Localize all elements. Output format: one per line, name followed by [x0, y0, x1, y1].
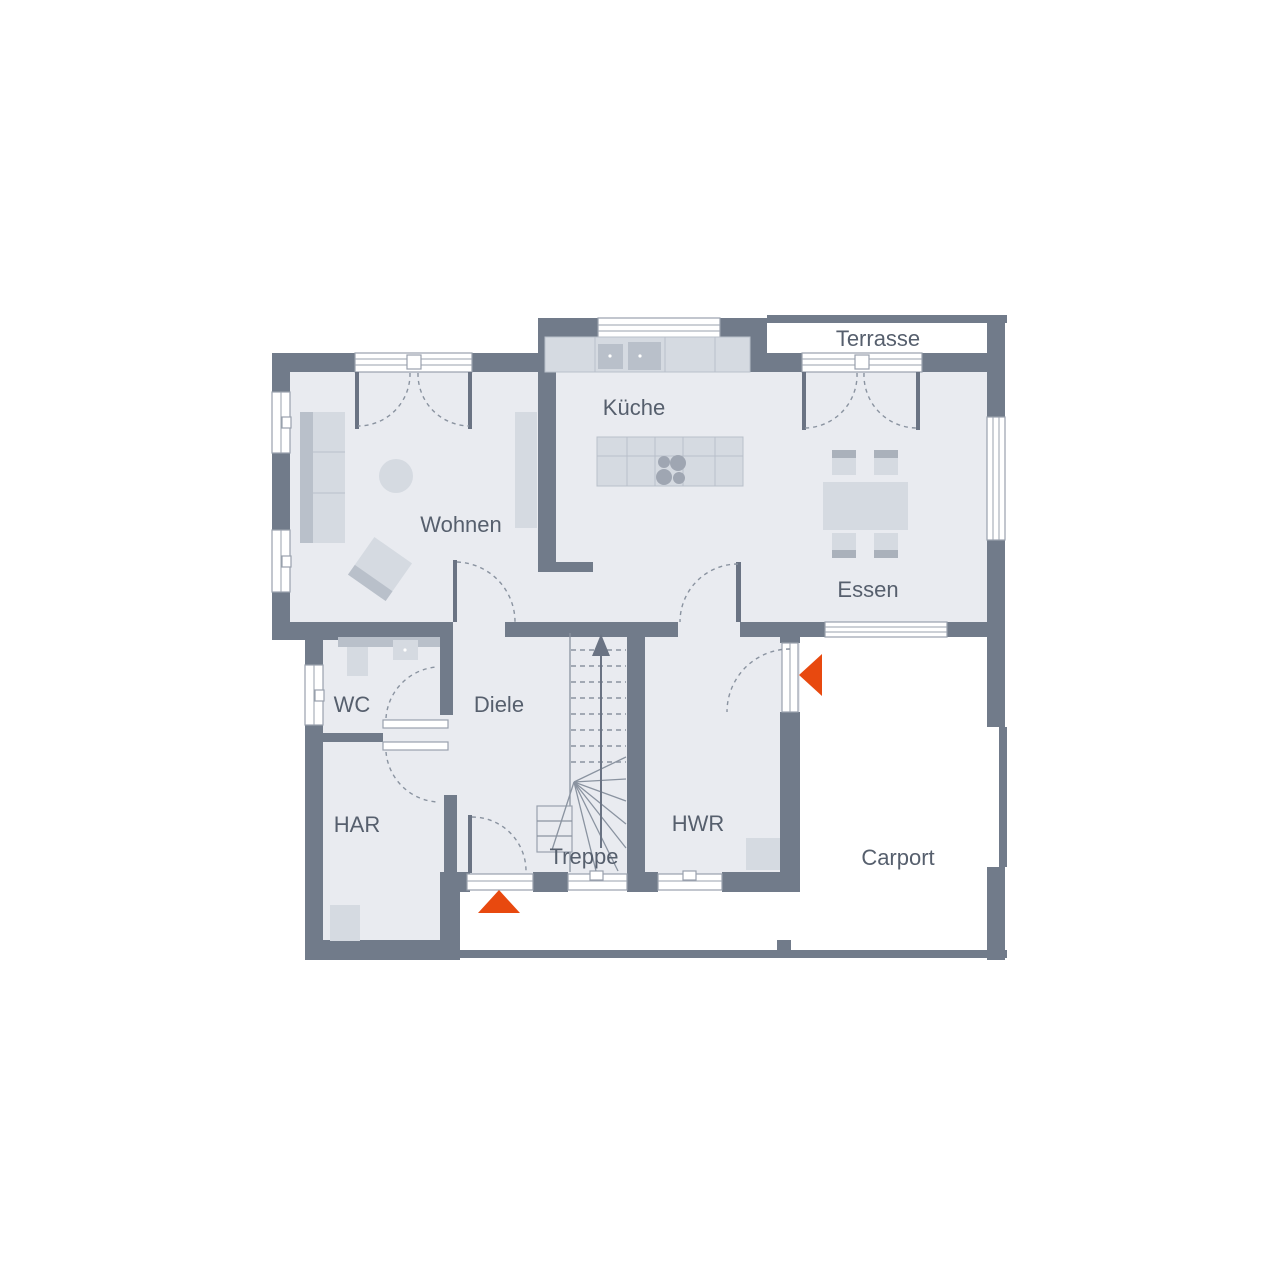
label-treppe: Treppe: [550, 844, 619, 869]
wall-segment: [767, 353, 802, 372]
wc-vanity: [338, 637, 440, 647]
wall-segment: [947, 622, 987, 637]
label-diele: Diele: [474, 692, 524, 717]
wall-segment: [538, 372, 556, 562]
window-hwr-bottom: [658, 871, 722, 890]
dining-chair: [832, 533, 856, 558]
wall-segment: [767, 315, 1007, 323]
wall-segment: [505, 622, 678, 637]
porch-area: [458, 890, 803, 952]
floor-plan: Terrasse Küche Wohnen Essen WC Diele HAR…: [0, 0, 1280, 1280]
wall-segment: [533, 872, 568, 892]
window-wohnen-left-1: [272, 392, 291, 453]
label-wohnen: Wohnen: [420, 512, 502, 537]
wall-segment: [440, 872, 470, 892]
label-wc: WC: [334, 692, 371, 717]
wall-segment: [627, 633, 645, 872]
kitchen-island: [597, 437, 743, 486]
dining-chair: [832, 450, 856, 475]
wall-segment: [722, 872, 800, 892]
label-kueche: Küche: [603, 395, 665, 420]
wall-segment: [460, 950, 1007, 958]
window-kueche-top: [598, 318, 720, 338]
sofa: [300, 412, 345, 543]
window-essen-right: [987, 417, 1005, 540]
window-wohnen-left-2: [272, 530, 291, 592]
coffee-table: [379, 459, 413, 493]
label-hwr: HWR: [672, 811, 725, 836]
fridge: [628, 342, 661, 370]
dining-chair: [874, 533, 898, 558]
wall-segment: [538, 318, 598, 338]
wall-segment: [627, 872, 658, 892]
har-appliance: [330, 905, 360, 941]
label-carport: Carport: [861, 845, 934, 870]
wall-segment: [999, 727, 1007, 867]
wall-segment: [323, 733, 383, 742]
wall-segment: [440, 622, 453, 715]
carport-post: [777, 940, 791, 952]
hwr-appliance: [746, 838, 780, 870]
dining-table: [823, 482, 908, 530]
window-wc-left: [305, 665, 324, 725]
room-wc-har-floor: [308, 630, 458, 950]
dining-chair: [874, 450, 898, 475]
wall-segment: [538, 562, 593, 572]
label-terrasse: Terrasse: [836, 326, 920, 351]
wall-segment: [987, 867, 1005, 960]
wall-segment: [305, 940, 460, 960]
kitchen-counter: [545, 337, 750, 372]
wall-segment: [272, 353, 355, 372]
sideboard: [515, 412, 537, 528]
wall-segment: [922, 353, 987, 372]
window-treppe-bottom: [568, 871, 627, 890]
label-har: HAR: [334, 812, 380, 837]
label-essen: Essen: [837, 577, 898, 602]
carport-area: [800, 637, 987, 950]
wall-segment: [780, 712, 800, 872]
window-essen-bottom: [825, 622, 947, 637]
floor-plan-page: Terrasse Küche Wohnen Essen WC Diele HAR…: [0, 0, 1280, 1280]
wc-toilet: [347, 647, 368, 676]
wall-segment: [780, 622, 800, 643]
